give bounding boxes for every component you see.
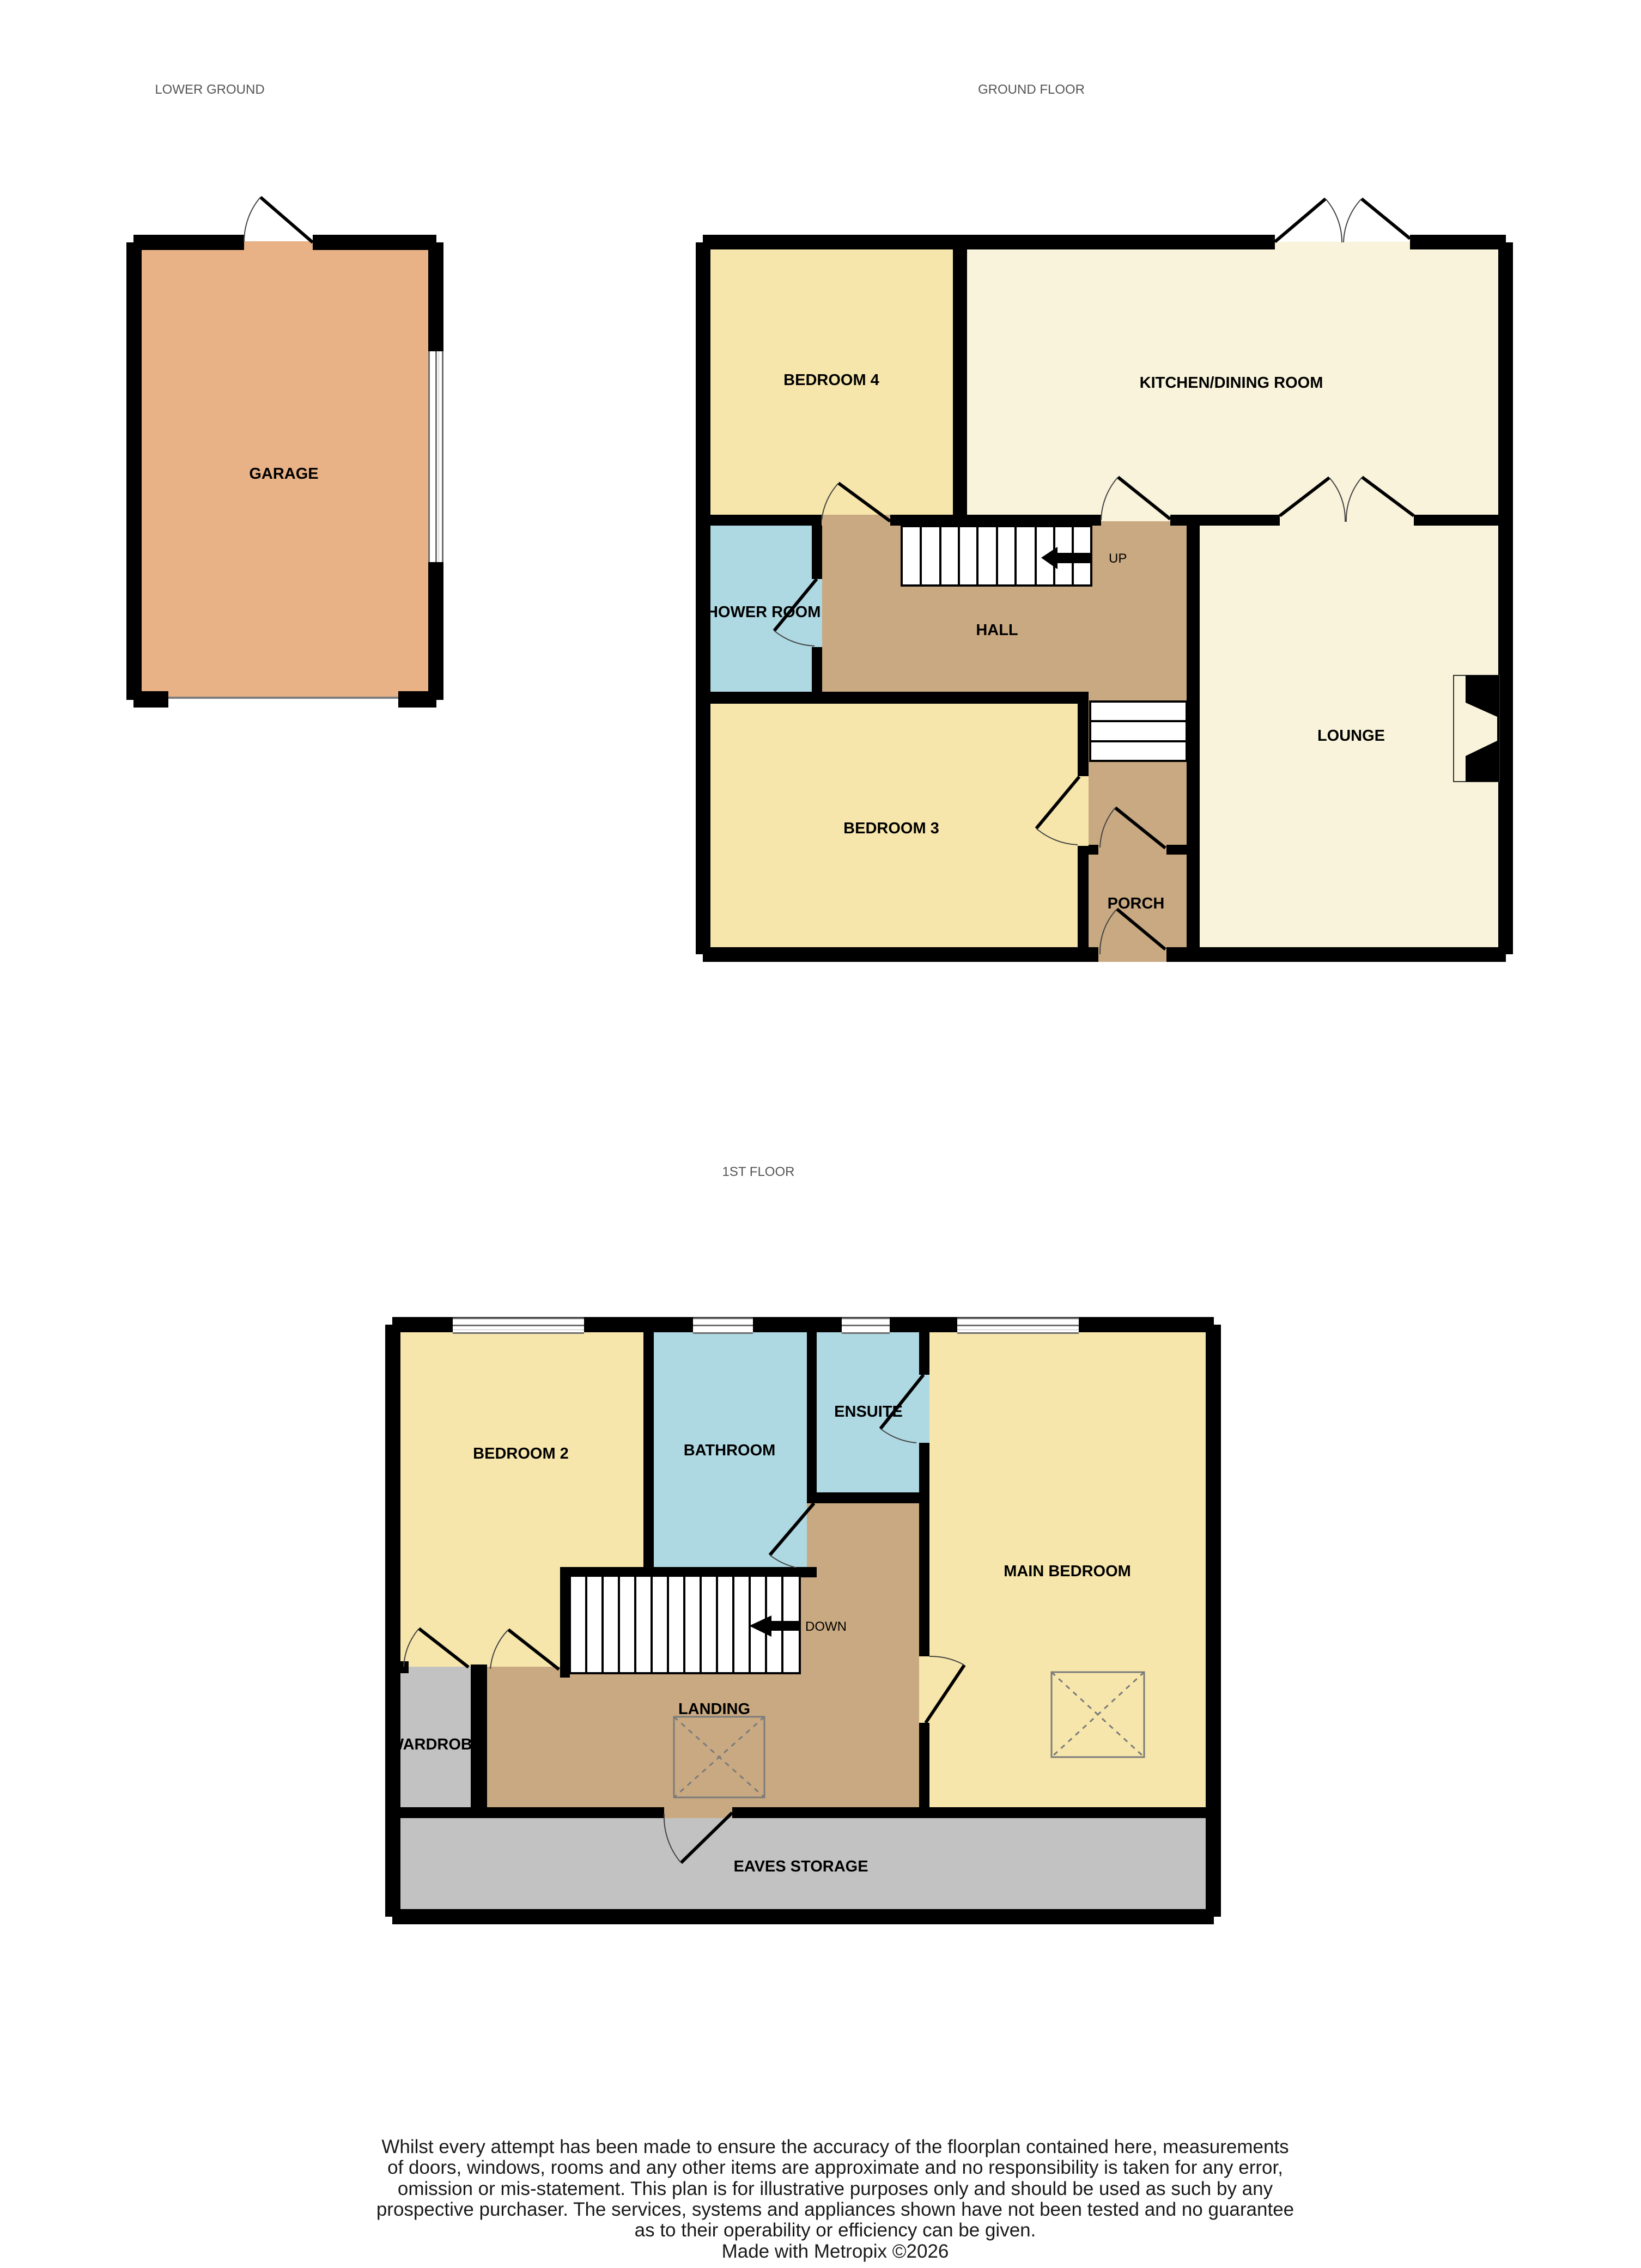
svg-text:LOUNGE: LOUNGE	[1317, 727, 1385, 745]
svg-text:SHOWER ROOM: SHOWER ROOM	[696, 603, 821, 621]
svg-text:EAVES STORAGE: EAVES STORAGE	[733, 1858, 868, 1875]
svg-text:omission or mis-statement. Thi: omission or mis-statement. This plan is …	[398, 2178, 1273, 2199]
svg-text:MAIN BEDROOM: MAIN BEDROOM	[1004, 1563, 1131, 1580]
svg-text:BEDROOM 4: BEDROOM 4	[783, 371, 879, 389]
svg-text:LANDING: LANDING	[678, 1700, 750, 1718]
svg-text:GROUND FLOOR: GROUND FLOOR	[978, 82, 1085, 97]
svg-text:BEDROOM 2: BEDROOM 2	[473, 1445, 569, 1462]
svg-text:UP: UP	[1109, 551, 1127, 566]
svg-text:BEDROOM 3: BEDROOM 3	[843, 820, 939, 837]
svg-text:as to their operability or eff: as to their operability or efficiency ca…	[635, 2220, 1036, 2241]
svg-text:LOWER GROUND: LOWER GROUND	[155, 82, 264, 97]
svg-text:Whilst every attempt has been: Whilst every attempt has been made to en…	[381, 2136, 1289, 2157]
svg-text:Made with Metropix ©2026: Made with Metropix ©2026	[722, 2241, 949, 2262]
svg-text:1ST FLOOR: 1ST FLOOR	[722, 1165, 795, 1179]
svg-text:prospective purchaser. The ser: prospective purchaser. The services, sys…	[376, 2199, 1294, 2220]
svg-text:WARDROBE: WARDROBE	[389, 1736, 483, 1753]
svg-text:DOWN: DOWN	[805, 1619, 847, 1634]
svg-text:HALL: HALL	[976, 621, 1018, 639]
svg-text:GARAGE: GARAGE	[249, 465, 318, 483]
svg-text:BATHROOM: BATHROOM	[684, 1442, 776, 1459]
svg-text:of doors, windows, rooms and a: of doors, windows, rooms and any other i…	[387, 2157, 1283, 2178]
svg-text:KITCHEN/DINING ROOM: KITCHEN/DINING ROOM	[1140, 374, 1323, 392]
